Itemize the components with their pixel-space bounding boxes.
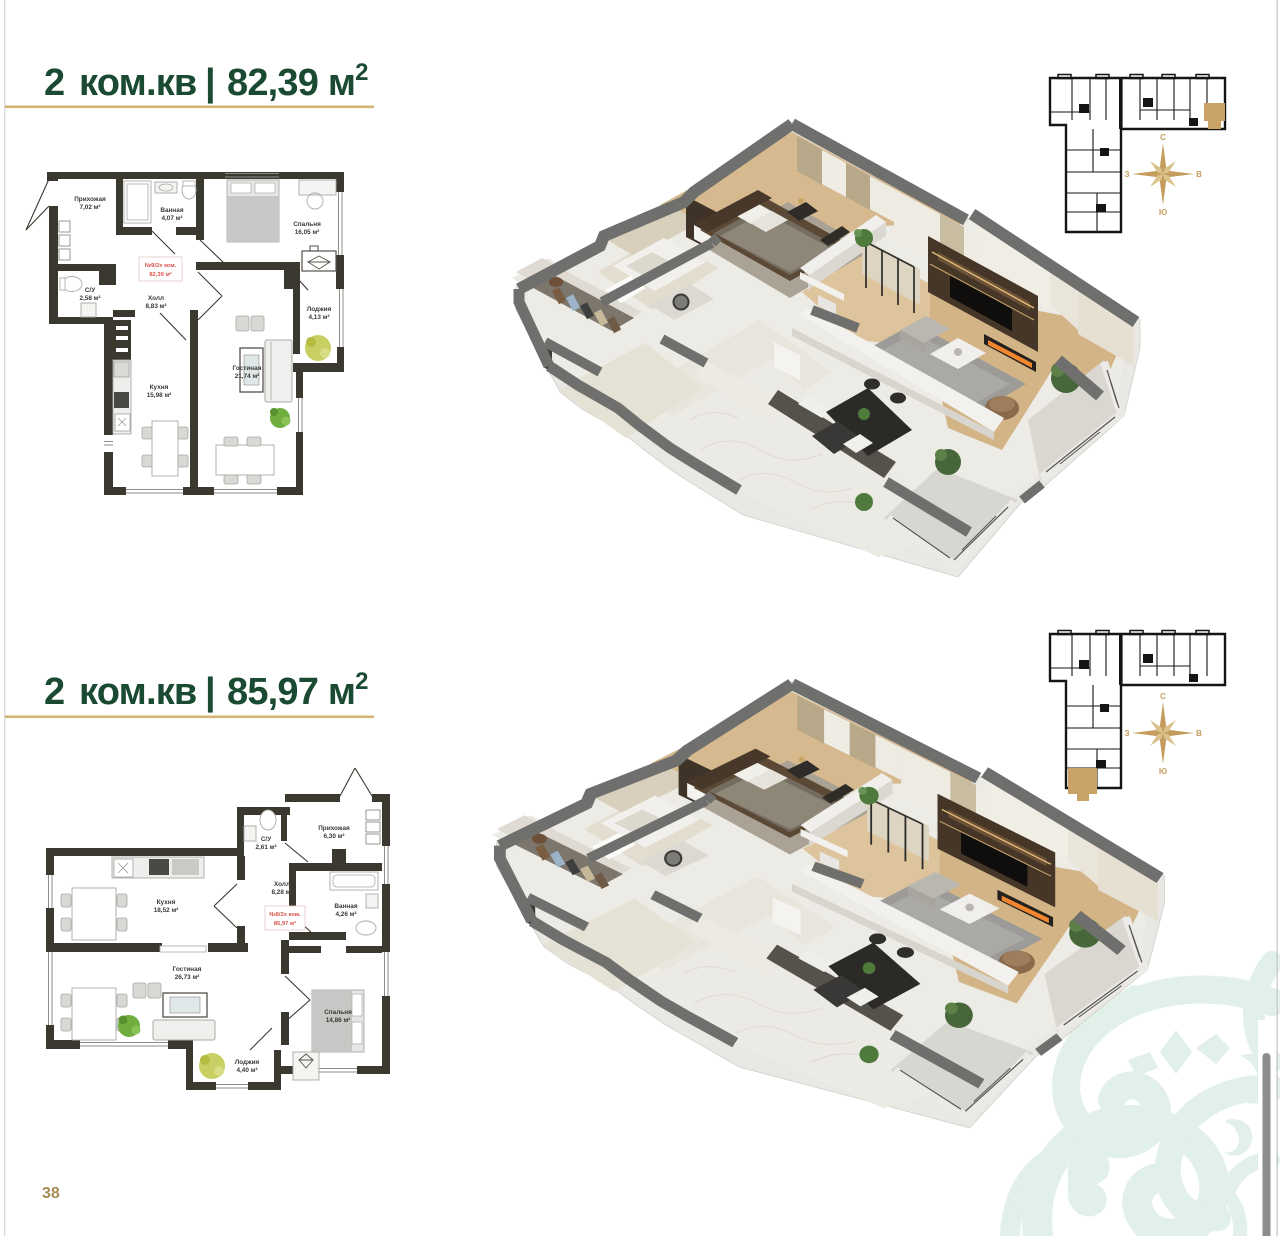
- svg-text:Спальня: Спальня: [293, 221, 321, 228]
- svg-text:82,39 м²: 82,39 м²: [149, 271, 171, 278]
- svg-text:Холл: Холл: [274, 881, 290, 888]
- svg-text:Гостиная: Гостиная: [233, 365, 262, 372]
- svg-text:21,74 м²: 21,74 м²: [235, 373, 260, 380]
- svg-text:З: З: [1124, 170, 1129, 179]
- svg-text:Кухня: Кухня: [150, 384, 169, 391]
- svg-text:Ванная: Ванная: [160, 207, 183, 214]
- svg-text:№8/2х ком.: №8/2х ком.: [269, 912, 301, 918]
- svg-text:2ком.кв|85,97 м2: 2ком.кв|85,97 м2: [44, 668, 369, 713]
- svg-text:15,98 м²: 15,98 м²: [147, 392, 172, 399]
- svg-text:4,26 м²: 4,26 м²: [335, 911, 356, 918]
- svg-text:Гостиная: Гостиная: [173, 966, 202, 973]
- svg-text:№9/2х ком.: №9/2х ком.: [145, 263, 177, 269]
- svg-text:2,61 м²: 2,61 м²: [255, 844, 276, 851]
- svg-text:С: С: [1160, 133, 1166, 142]
- svg-text:6,30 м²: 6,30 м²: [323, 833, 344, 840]
- svg-text:Ванная: Ванная: [334, 903, 357, 910]
- svg-text:В: В: [1196, 170, 1202, 179]
- svg-text:2ком.кв|82,39 м2: 2ком.кв|82,39 м2: [44, 59, 369, 104]
- svg-text:26,73 м²: 26,73 м²: [175, 974, 200, 981]
- svg-text:14,86 м²: 14,86 м²: [326, 1017, 351, 1024]
- svg-text:В: В: [1196, 729, 1202, 738]
- svg-text:16,05 м²: 16,05 м²: [295, 229, 320, 236]
- svg-text:З: З: [1124, 729, 1129, 738]
- svg-text:4,07 м²: 4,07 м²: [161, 215, 182, 222]
- svg-text:Ю: Ю: [1159, 208, 1167, 217]
- svg-text:38: 38: [42, 1185, 60, 1202]
- svg-text:Кухня: Кухня: [157, 899, 176, 906]
- svg-text:С: С: [1160, 692, 1166, 701]
- svg-text:4,40 м²: 4,40 м²: [236, 1067, 257, 1074]
- svg-text:4,13 м²: 4,13 м²: [308, 314, 329, 321]
- svg-text:Спальня: Спальня: [324, 1009, 352, 1016]
- svg-text:С/У: С/У: [85, 287, 96, 294]
- svg-text:7,02 м²: 7,02 м²: [79, 204, 100, 211]
- svg-text:Холл: Холл: [148, 295, 164, 302]
- svg-text:Лоджия: Лоджия: [307, 306, 332, 313]
- svg-text:Прихожая: Прихожая: [318, 825, 350, 832]
- svg-text:Лоджия: Лоджия: [235, 1059, 260, 1066]
- svg-text:18,52 м²: 18,52 м²: [154, 907, 179, 914]
- svg-text:85,97 м²: 85,97 м²: [274, 920, 296, 927]
- svg-text:2,58 м²: 2,58 м²: [79, 295, 100, 302]
- svg-text:8,28 м²: 8,28 м²: [271, 889, 292, 896]
- svg-text:Ю: Ю: [1159, 767, 1167, 776]
- svg-text:С/У: С/У: [261, 836, 272, 843]
- svg-text:8,83 м²: 8,83 м²: [145, 303, 166, 310]
- svg-text:Прихожая: Прихожая: [74, 196, 106, 203]
